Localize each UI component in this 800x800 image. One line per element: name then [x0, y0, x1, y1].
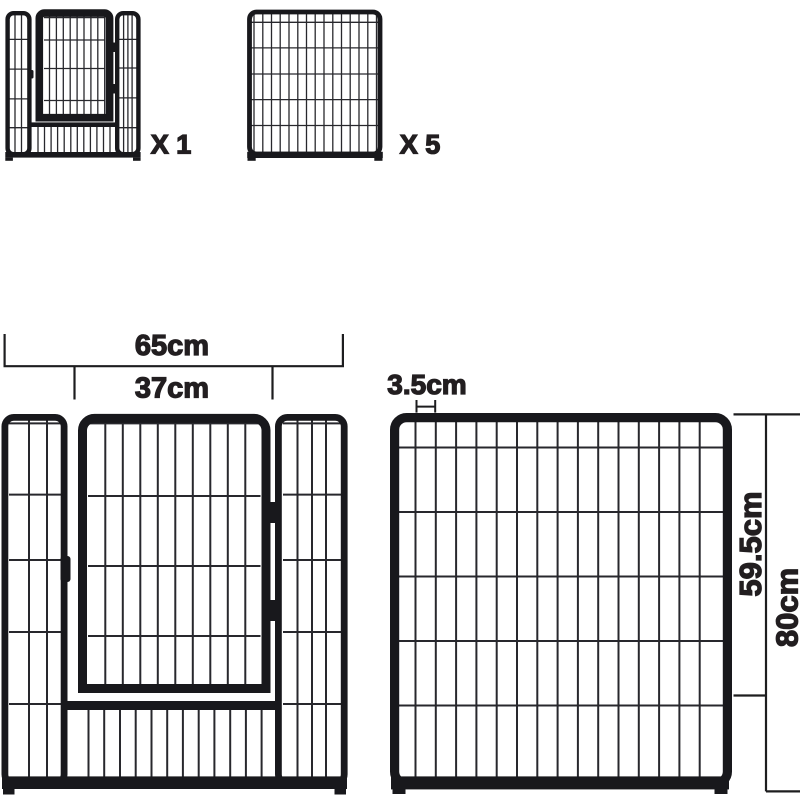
- svg-text:X 1: X 1: [151, 130, 192, 160]
- svg-text:65cm: 65cm: [135, 330, 209, 362]
- svg-text:59.5cm: 59.5cm: [733, 491, 768, 596]
- svg-text:37cm: 37cm: [135, 373, 209, 405]
- svg-text:3.5cm: 3.5cm: [387, 369, 466, 400]
- svg-text:80cm: 80cm: [770, 568, 800, 647]
- svg-text:X 5: X 5: [400, 130, 441, 160]
